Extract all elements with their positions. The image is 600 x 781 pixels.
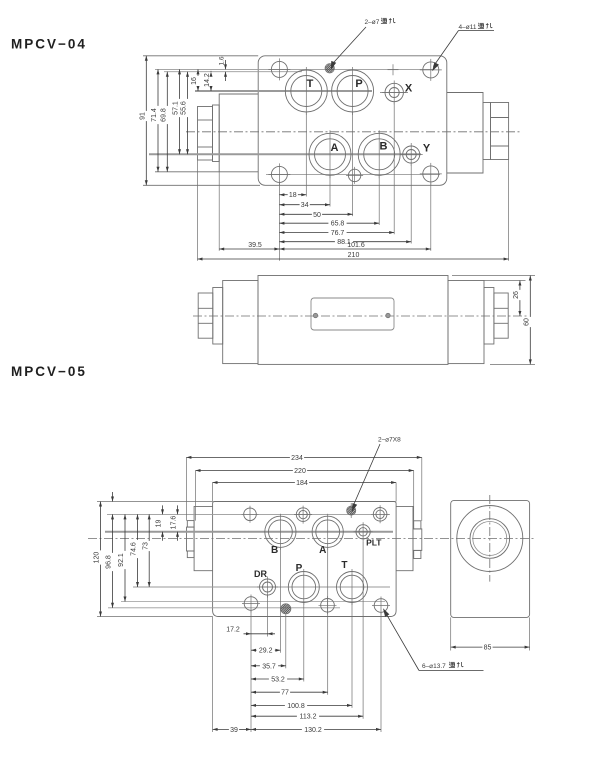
svg-text:39: 39 [230,727,238,734]
svg-text:X: X [405,83,413,95]
svg-text:MPCV−04: MPCV−04 [11,37,87,52]
svg-text:210: 210 [348,252,360,259]
svg-text:17.6: 17.6 [171,516,178,530]
svg-text:B: B [271,545,278,556]
svg-text:65.8: 65.8 [331,221,345,228]
svg-text:184: 184 [296,480,308,487]
svg-text:19: 19 [156,520,163,528]
svg-text:2–ø7: 2–ø7 [365,19,380,26]
svg-text:50: 50 [313,212,321,219]
svg-text:14.2: 14.2 [204,73,211,87]
svg-text:16: 16 [191,77,198,85]
svg-text:6–⌀13.7: 6–⌀13.7 [422,663,446,670]
svg-text:113.2: 113.2 [300,714,317,721]
svg-text:101.6: 101.6 [347,242,365,249]
svg-text:A: A [319,545,326,556]
svg-text:91: 91 [140,112,147,120]
svg-text:92.1: 92.1 [118,553,125,567]
svg-text:69.8: 69.8 [161,108,168,122]
svg-text:29.2: 29.2 [259,648,273,655]
svg-text:74.6: 74.6 [131,542,138,556]
svg-text:60: 60 [524,318,531,326]
svg-text:P: P [355,78,362,90]
svg-text:55.6: 55.6 [181,101,188,115]
svg-text:DR: DR [254,569,267,579]
svg-text:PLT: PLT [366,538,382,548]
svg-text:76.7: 76.7 [331,230,345,237]
svg-text:120: 120 [94,552,101,564]
svg-text:73: 73 [142,542,149,550]
svg-text:P: P [296,563,303,574]
svg-text:77: 77 [281,690,289,697]
svg-text:220: 220 [294,468,306,475]
svg-text:57.1: 57.1 [173,101,180,115]
svg-text:234: 234 [291,455,303,462]
svg-text:A: A [331,142,339,154]
svg-text:4–ø11: 4–ø11 [459,24,477,31]
svg-text:B: B [380,141,388,153]
svg-text:T: T [307,78,314,90]
svg-text:35.7: 35.7 [262,663,276,670]
svg-text:1.6: 1.6 [219,56,226,65]
svg-text:130.2: 130.2 [304,727,322,734]
svg-text:53.2: 53.2 [271,677,285,684]
svg-text:18: 18 [289,192,297,199]
svg-text:Y: Y [423,143,431,155]
svg-text:39.5: 39.5 [248,242,262,249]
svg-text:2–⌀7X8: 2–⌀7X8 [378,437,401,444]
svg-text:26: 26 [513,291,520,299]
svg-text:96.8: 96.8 [106,555,113,569]
svg-text:MPCV−05: MPCV−05 [11,364,87,379]
svg-text:85: 85 [484,645,492,652]
svg-text:100.8: 100.8 [287,703,305,710]
svg-text:34: 34 [301,202,309,209]
svg-text:17.2: 17.2 [226,627,240,634]
svg-text:71.4: 71.4 [151,108,158,122]
svg-text:T: T [341,560,347,571]
